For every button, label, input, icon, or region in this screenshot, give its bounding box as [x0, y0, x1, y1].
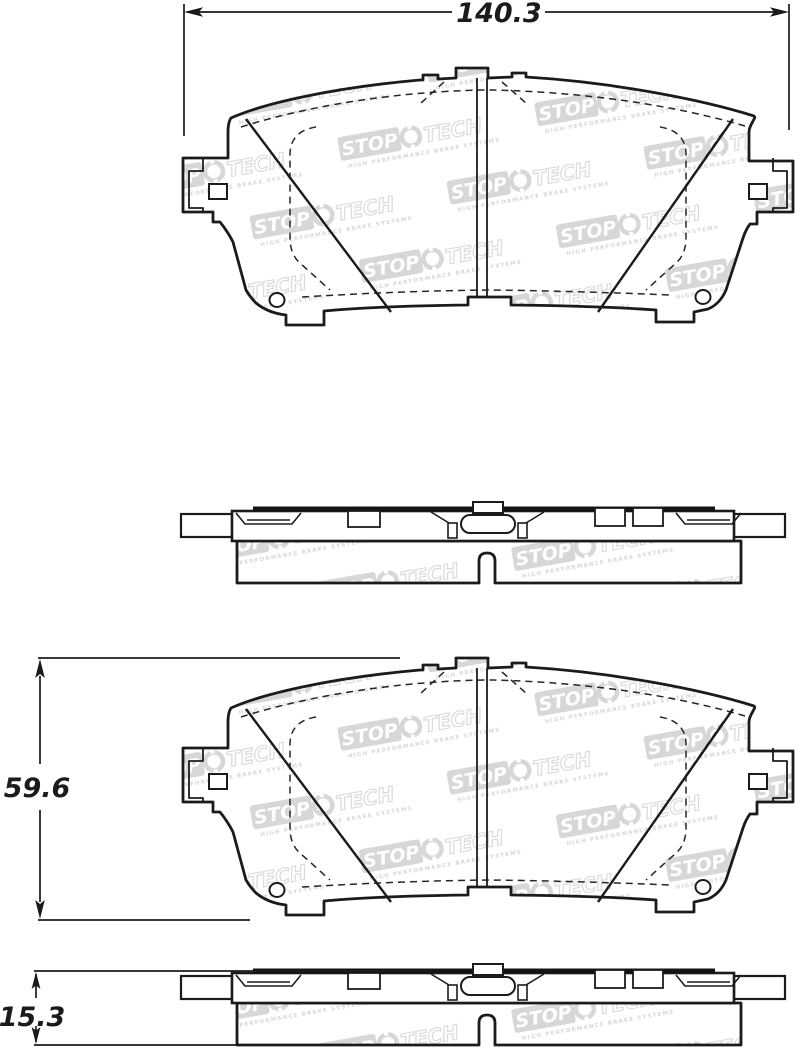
pad-front-view-top [183, 68, 793, 325]
width-dimension-label: 140.3 [456, 0, 541, 29]
thickness-dimension-label: 15.3 [0, 1002, 65, 1033]
technical-drawing: STOP TECH HIGH PERFORMANCE BRAKE SYSTEMS [0, 0, 800, 1049]
pad-edge-view-middle [181, 502, 785, 583]
height-dimension-label: 59.6 [4, 773, 71, 804]
pad-edge-view-bottom [181, 964, 785, 1045]
drawing-canvas: STOP TECH HIGH PERFORMANCE BRAKE SYSTEMS [0, 0, 800, 1049]
height-arrow-bottom [35, 900, 45, 919]
pad-front-view-bottom [183, 658, 793, 915]
height-arrow-top [35, 659, 45, 678]
